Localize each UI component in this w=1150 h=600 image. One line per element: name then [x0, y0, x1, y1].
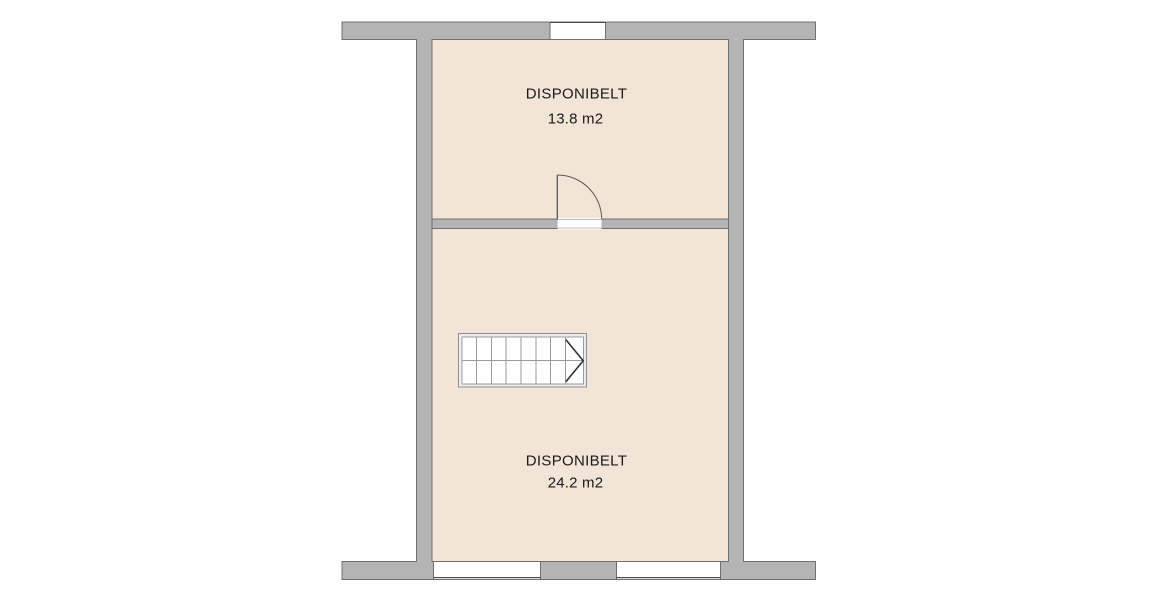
top-window [550, 22, 606, 40]
floor-plan-canvas: DISPONIBELT 13.8 m2 DISPONIBELT 24.2 m2 [0, 0, 1150, 600]
bottom-window-right-opening [617, 562, 721, 579]
bottom-window-right [617, 561, 721, 580]
room-label-upper: DISPONIBELT [526, 86, 627, 103]
room-area-lower: 24.2 m2 [548, 475, 604, 492]
top-window-opening [550, 23, 606, 39]
floor-plan-drawing: DISPONIBELT 13.8 m2 DISPONIBELT 24.2 m2 [0, 0, 1150, 600]
room-label-lower: DISPONIBELT [526, 453, 627, 470]
bottom-window-left [433, 561, 540, 580]
bottom-window-left-opening [433, 562, 540, 579]
staircase [458, 334, 586, 387]
room-area-upper: 13.8 m2 [548, 111, 604, 128]
